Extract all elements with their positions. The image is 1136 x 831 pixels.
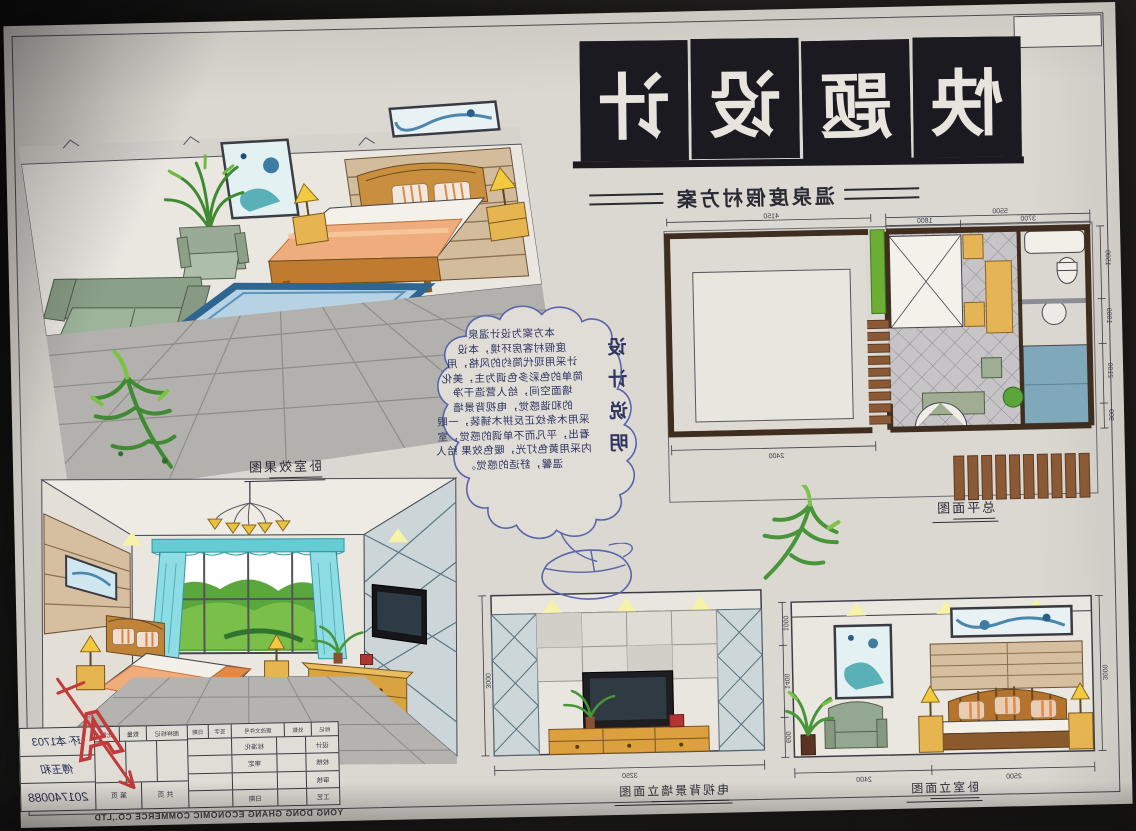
plan-label: 总平面图	[932, 497, 999, 524]
grade-stroke	[58, 678, 134, 790]
presentation-sheet: 快题设计 快 题 设 计 温泉度假村方案	[3, 2, 1132, 828]
tile-feature-panel	[536, 610, 717, 682]
svg-text:1000: 1000	[781, 615, 788, 631]
tv-elevation-svg: 3250 3000	[476, 575, 781, 793]
table-blank-cell	[277, 771, 306, 788]
bed-elevation-svg: 2500 2400 3000 1000 1400 600	[774, 580, 1111, 799]
plan-terrace	[670, 235, 869, 431]
wall-art-long	[951, 606, 1072, 637]
photo-of-design-board: 快题设计 快 题 设 计 温泉度假村方案	[0, 0, 1136, 831]
tv-on-lattice-wall	[372, 584, 426, 644]
table-label-cell: 日期	[232, 789, 277, 806]
table-label-cell: 工艺	[306, 788, 339, 805]
title-block-revision-grid: 标记 处数 更改文件号 签字 日期 设计 标准化 校核 审定	[187, 722, 340, 807]
title-logotype: 快 题 设 计	[579, 36, 1021, 161]
svg-text:600: 600	[784, 731, 791, 743]
plan-planting-strip	[870, 230, 886, 314]
svg-text:3000: 3000	[484, 673, 491, 689]
table-header-cell: 日期	[188, 725, 208, 738]
svg-text:1800: 1800	[917, 218, 933, 225]
table-header-cell: 签字	[208, 724, 231, 737]
lattice-panel-left	[716, 609, 764, 751]
wall-art-square	[222, 134, 299, 224]
table-header-cell: 标记	[311, 722, 338, 736]
svg-text:4150: 4150	[763, 213, 779, 220]
table-blank-cell	[189, 790, 232, 807]
svg-text:2500: 2500	[1006, 773, 1022, 780]
svg-text:2400: 2400	[856, 776, 872, 783]
notes-text: 本方案为设计温泉 度假村客房环境，本设 计采用现代简约的风格，用 简单的色彩多色…	[422, 325, 603, 474]
grade-mark: A	[33, 667, 156, 802]
table-blank-cell	[188, 738, 231, 755]
slat-headboard-band	[930, 641, 1083, 690]
table-blank-cell	[156, 740, 188, 781]
subtitle-rule	[589, 193, 664, 206]
rendering-label: 卧室效果图	[244, 455, 326, 482]
plant-doodle	[82, 348, 181, 474]
svg-text:2100: 2100	[1106, 362, 1113, 378]
svg-text:3250: 3250	[622, 773, 638, 780]
floor-plan-drawing: 5500 3700 1800 4150 2400 1500 1000 2100 …	[642, 202, 1117, 524]
lattice-panel-right	[491, 614, 539, 756]
paper-tilt-wrapper: 快题设计 快 题 设 计 温泉度假村方案	[3, 2, 1132, 828]
television-screen	[590, 677, 667, 721]
elevation-label: 卧室立面图	[906, 778, 983, 803]
title-glyph: 设	[690, 38, 799, 159]
table-blank-cell	[276, 754, 305, 771]
floor-plan-svg: 5500 3700 1800 4150 2400 1500 1000 2100 …	[642, 202, 1117, 524]
design-notes-bubble: 设计说明 本方案为设计温泉 度假村客房环境，本设 计采用现代简约的风格，用 简单…	[409, 294, 653, 567]
table-blank-cell	[189, 773, 232, 790]
svg-text:1400: 1400	[783, 673, 790, 689]
title-glyph: 快	[912, 36, 1021, 157]
table-label-cell: 校核	[305, 753, 338, 770]
elevation-label: 电视背景墙立面图	[614, 781, 732, 807]
svg-text:1000: 1000	[1105, 308, 1112, 324]
title-glyph: 计	[579, 40, 688, 161]
table-label-cell: 设计	[305, 736, 338, 753]
notes-heading: 设计说明	[605, 337, 635, 466]
table-header-cell: 更改文件号	[231, 723, 284, 737]
plant-doodle	[754, 484, 856, 586]
svg-text:2400: 2400	[768, 453, 784, 460]
subtitle-rule	[845, 187, 920, 200]
table-header-cell: 处数	[284, 723, 311, 737]
table-label-cell: 审定	[231, 755, 276, 772]
title-glyph: 题	[801, 39, 911, 161]
table-label-cell: 标准化	[231, 737, 276, 754]
svg-text:3000: 3000	[1101, 664, 1108, 680]
table-blank-cell	[276, 737, 305, 754]
svg-text:900: 900	[1107, 409, 1114, 421]
board-title-text: 快题设计	[1114, 2, 1115, 3]
plan-guest-room	[886, 227, 1091, 429]
plan-lower-walkway	[954, 453, 1090, 500]
svg-text:1500: 1500	[1104, 250, 1111, 266]
wall-art-tall	[835, 625, 893, 698]
tv-wall-elevation: 3250 3000	[476, 575, 781, 793]
table-blank-cell	[188, 756, 231, 773]
svg-text:5500: 5500	[992, 208, 1008, 215]
bed-wall-elevation: 2500 2400 3000 1000 1400 600	[774, 580, 1111, 799]
table-blank-cell	[277, 789, 306, 806]
svg-text:3700: 3700	[1020, 215, 1036, 222]
table-label-cell	[232, 772, 277, 789]
table-label-cell: 审核	[306, 771, 339, 788]
armchair	[824, 701, 887, 748]
frame-corner-box	[1013, 14, 1102, 48]
